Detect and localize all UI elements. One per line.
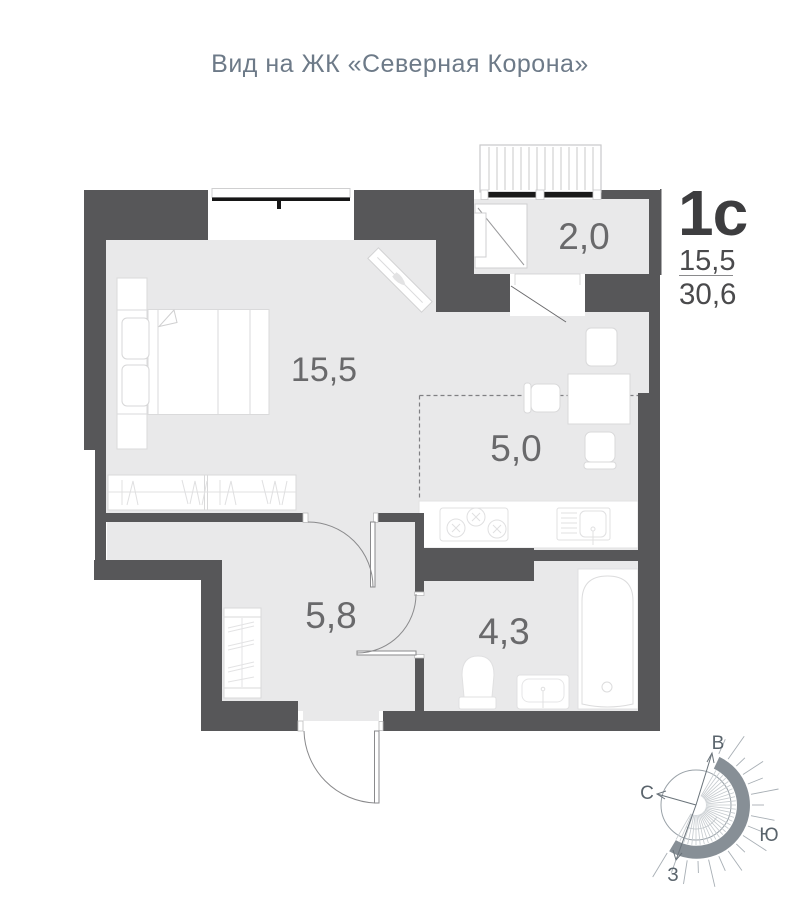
svg-text:15,5: 15,5 — [291, 351, 357, 389]
svg-text:5,8: 5,8 — [305, 595, 356, 636]
svg-text:15,5: 15,5 — [679, 245, 735, 277]
svg-text:В: В — [712, 733, 725, 754]
svg-text:Ю: Ю — [759, 825, 778, 846]
svg-text:1с: 1с — [678, 177, 747, 249]
svg-text:4,3: 4,3 — [478, 611, 529, 652]
svg-text:2,0: 2,0 — [558, 216, 609, 257]
svg-text:5,0: 5,0 — [490, 428, 541, 469]
svg-text:Вид на ЖК «Северная Корона»: Вид на ЖК «Северная Корона» — [211, 50, 589, 78]
svg-text:С: С — [640, 783, 654, 804]
svg-text:З: З — [667, 865, 678, 886]
svg-text:30,6: 30,6 — [679, 278, 736, 311]
